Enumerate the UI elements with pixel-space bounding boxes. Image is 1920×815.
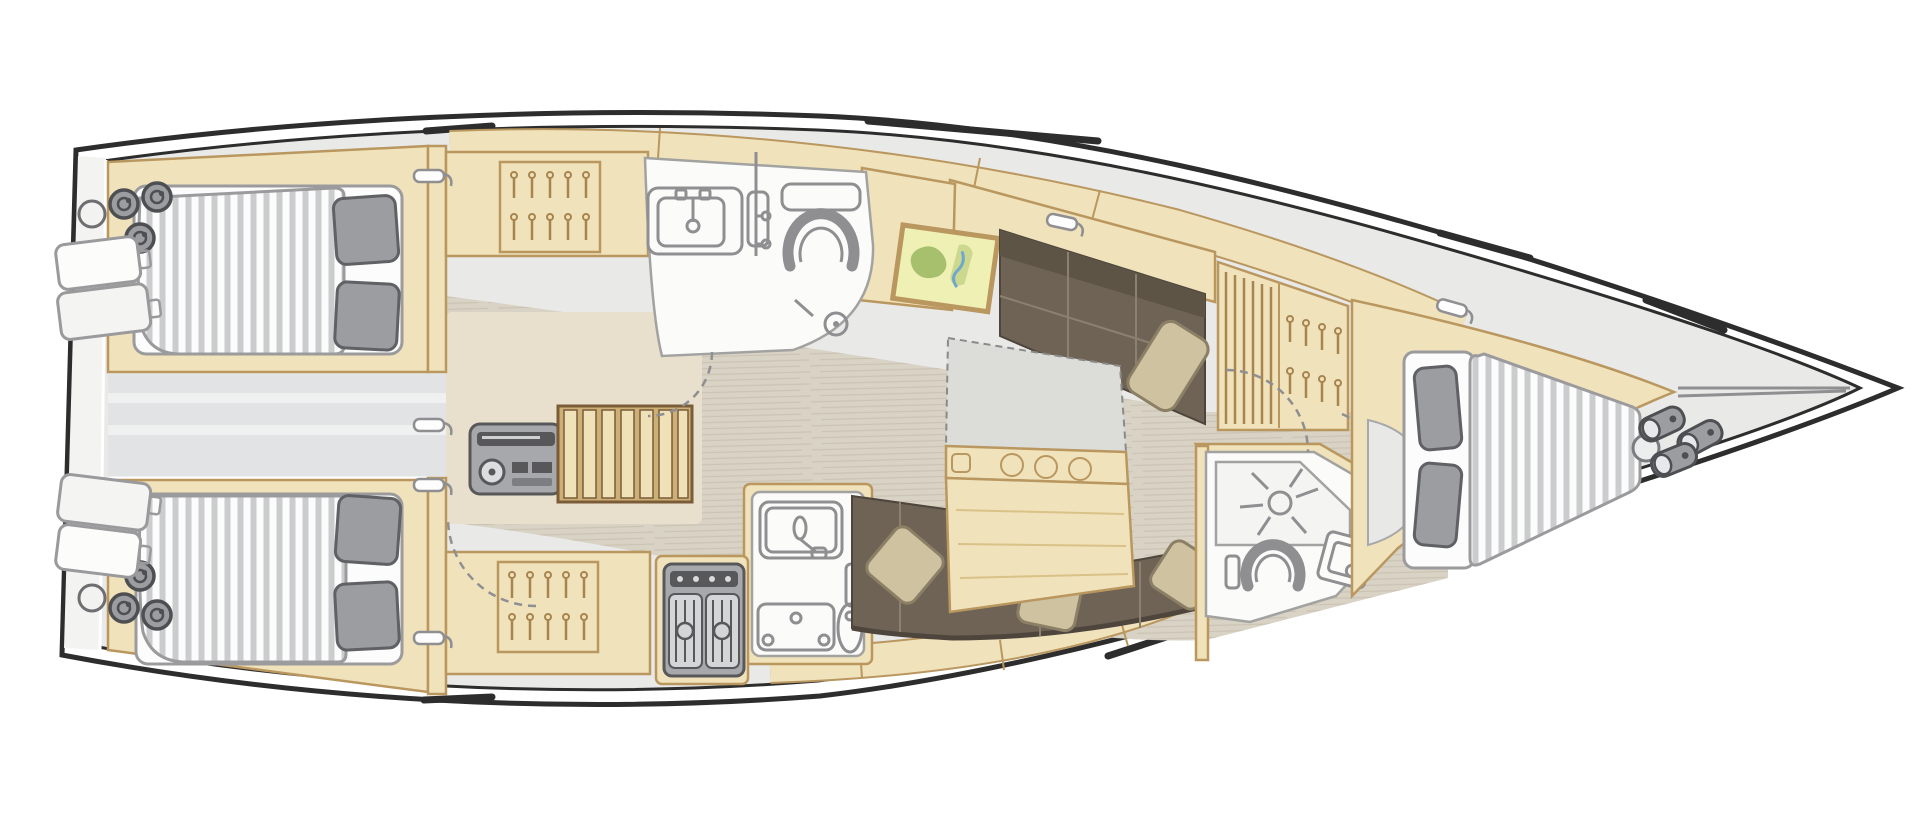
pillow — [333, 195, 399, 265]
hull-fitting-mark — [424, 697, 492, 700]
aft-cabin-bottom — [108, 480, 428, 692]
winch — [143, 183, 171, 211]
wardrobe-bottom — [446, 552, 650, 674]
burner — [669, 594, 702, 668]
folding-table — [946, 338, 1134, 612]
bulkhead-bottom — [428, 478, 446, 694]
winch — [143, 601, 171, 629]
winch-outline — [79, 585, 105, 611]
wardrobe-top — [446, 152, 648, 256]
pillow — [334, 281, 399, 350]
engine-compartment — [108, 372, 446, 478]
floor-plan-canvas — [0, 0, 1920, 815]
pillow — [1414, 462, 1463, 547]
stove — [664, 564, 744, 676]
washbasin — [648, 188, 742, 254]
winch-outline — [79, 201, 105, 227]
aft-cabin-top — [108, 146, 428, 372]
companionway-stairs — [558, 406, 692, 502]
burner — [706, 594, 739, 668]
yacht-floor-plan — [0, 0, 1920, 815]
nav-station — [893, 225, 998, 312]
striped-mattress — [139, 496, 346, 662]
helm-seat — [51, 234, 163, 341]
striped-mattress — [138, 188, 344, 354]
engine-unit — [470, 424, 562, 494]
pillow — [335, 495, 401, 565]
winch — [110, 190, 138, 218]
pillow — [1414, 365, 1463, 450]
helm-seat — [51, 474, 163, 581]
pillow — [334, 581, 399, 650]
winch — [110, 594, 138, 622]
